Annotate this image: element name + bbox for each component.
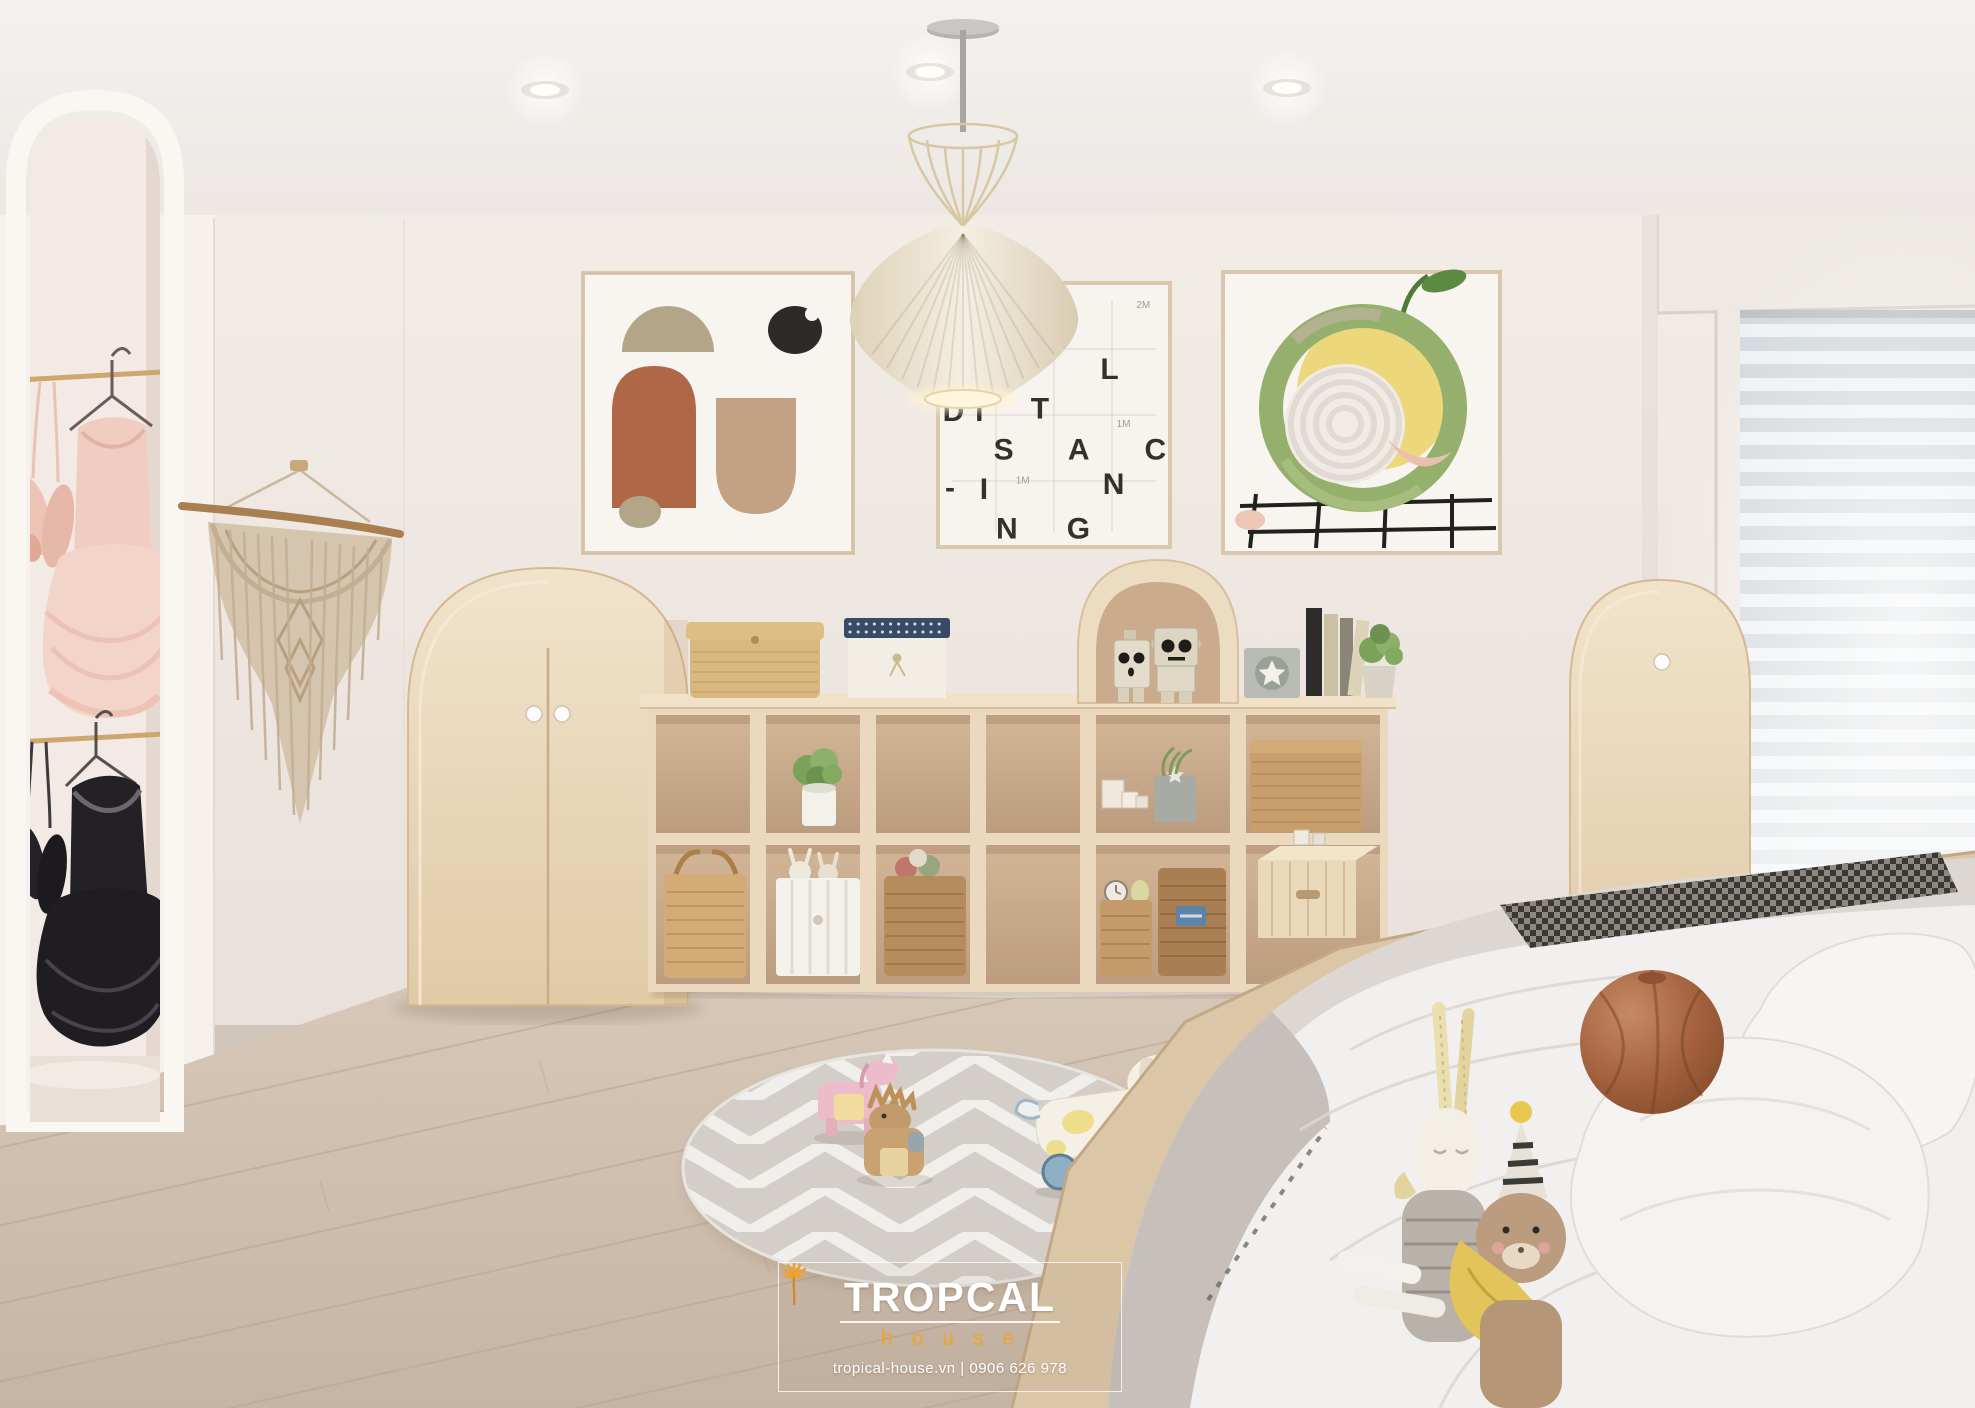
art-dimension-label: 2M: [1136, 300, 1150, 311]
star-box: [1244, 648, 1300, 698]
robot-toy-icon: [1151, 628, 1201, 703]
art-letter: N: [1103, 468, 1126, 501]
art-dimension-label: 1M: [1016, 476, 1030, 487]
brand-subtitle: house: [881, 1327, 1033, 1351]
closet-nook: [8, 100, 175, 1128]
art-letter: G: [1067, 513, 1091, 546]
contact-info: tropical-house.vn | 0906 626 978: [833, 1360, 1067, 1377]
palm-icon: [781, 1263, 807, 1305]
wardrobe-knob: [554, 706, 570, 722]
storage-box-navy-lid: [844, 618, 950, 698]
artwork-abstract-arches: [583, 273, 853, 553]
art-letter: A: [1068, 433, 1091, 466]
art-letter: -: [945, 472, 956, 505]
recessed-spotlight-icon: [1247, 48, 1327, 128]
room-illustration: LDITSAC-INNG2M1M1M: [0, 0, 1975, 1408]
wardrobe-knob: [526, 706, 542, 722]
bedroom-render: LDITSAC-INNG2M1M1M: [0, 0, 1975, 1408]
art-letter: S: [994, 433, 1015, 466]
art-letter: C: [1144, 433, 1167, 466]
recessed-spotlight-icon: [505, 50, 585, 130]
arch-niche: [1078, 560, 1238, 703]
art-letter: N: [996, 513, 1019, 546]
rattan-box: [686, 622, 824, 698]
art-letter: I: [980, 473, 989, 506]
basket-with-clock-toy: [1100, 880, 1152, 976]
knit-ball-cushion: [1580, 970, 1724, 1114]
brand-text-pre: TROP: [844, 1277, 966, 1318]
studio-watermark: TROP CAL house tropical-house.vn | 0906 …: [778, 1262, 1122, 1392]
art-letter: T: [1031, 393, 1050, 426]
brand-logo: TROP CAL: [840, 1277, 1060, 1323]
recessed-spotlight-icon: [890, 32, 970, 112]
wicker-basket-blue-label: [1158, 868, 1226, 976]
rattan-basket: [1250, 740, 1362, 832]
brand-text-post: CAL: [966, 1277, 1056, 1318]
art-letter: L: [1100, 353, 1119, 386]
cabinet-knob: [1654, 654, 1670, 670]
art-dimension-label: 1M: [1117, 419, 1131, 430]
artwork-abstract-fruit: [1223, 265, 1500, 553]
